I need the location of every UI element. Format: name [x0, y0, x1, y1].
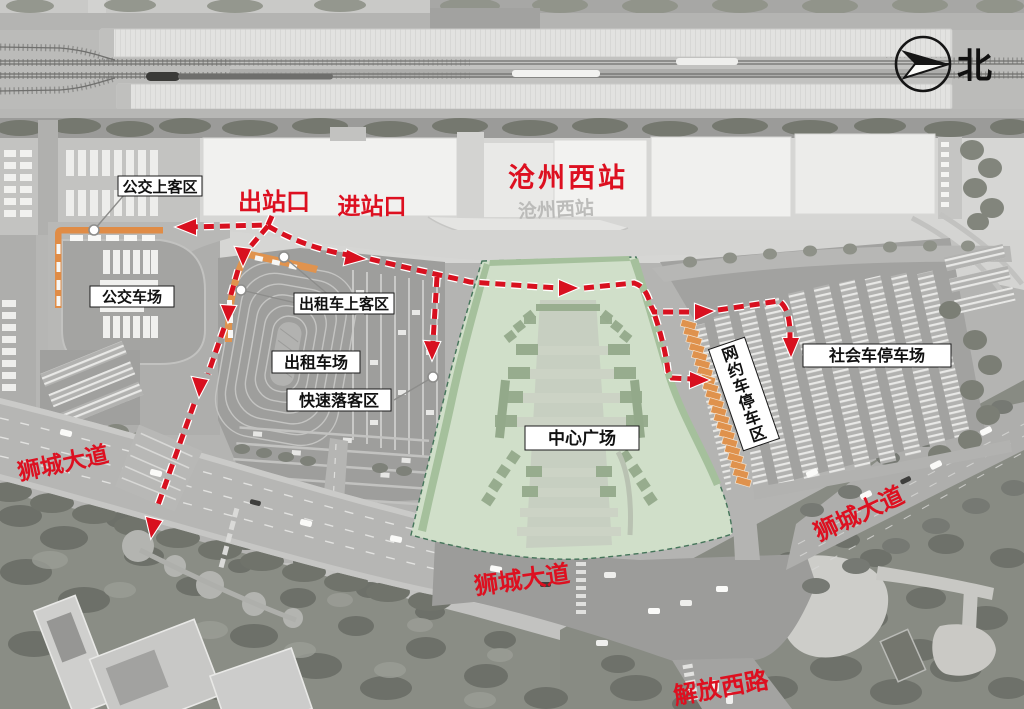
svg-text:中心广场: 中心广场: [548, 428, 616, 448]
svg-text:出站口: 出站口: [238, 189, 310, 216]
svg-text:社会车停车场: 社会车停车场: [828, 346, 925, 365]
svg-text:沧州西站: 沧州西站: [508, 162, 628, 193]
svg-text:公交上客区: 公交上客区: [122, 178, 197, 196]
svg-text:进站口: 进站口: [338, 193, 407, 219]
svg-text:快速落客区: 快速落客区: [299, 391, 379, 410]
svg-text:北: 北: [957, 47, 992, 86]
svg-text:公交车场: 公交车场: [102, 288, 162, 306]
svg-text:出租车场: 出租车场: [284, 353, 348, 372]
svg-text:出租车上客区: 出租车上客区: [299, 295, 389, 313]
